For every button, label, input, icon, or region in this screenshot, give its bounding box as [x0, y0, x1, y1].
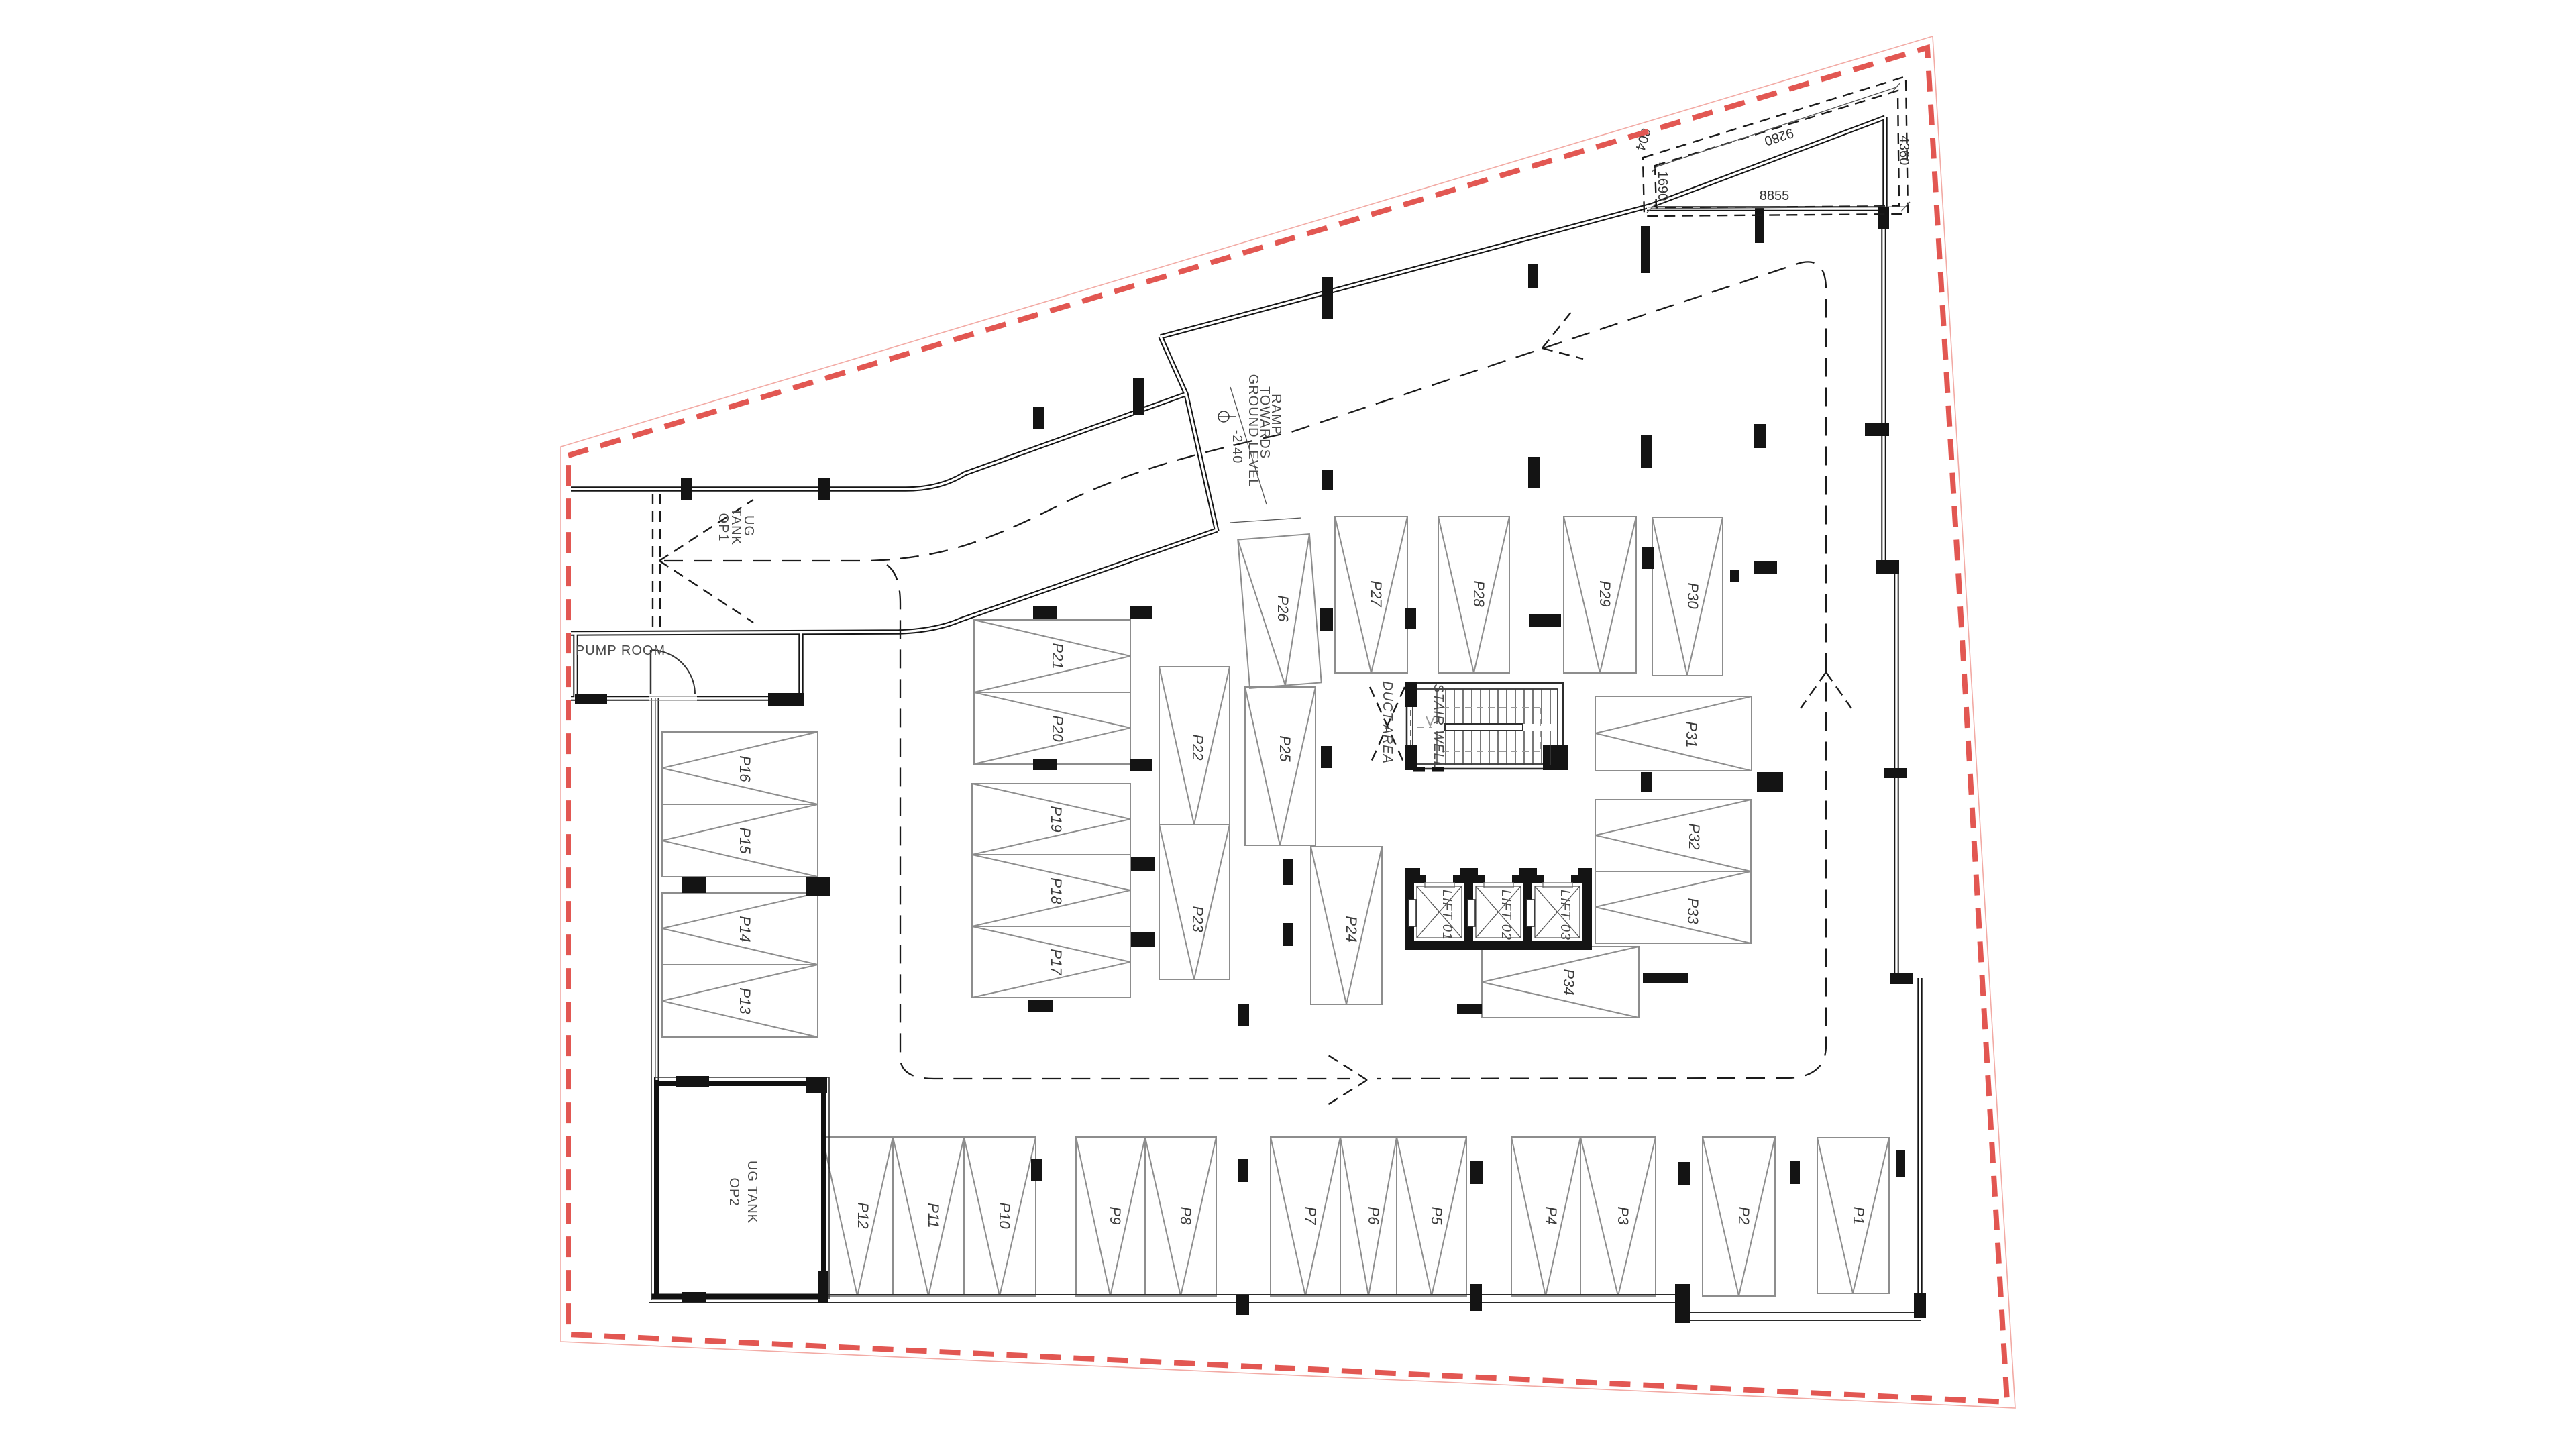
svg-text:P16: P16 [737, 755, 753, 782]
svg-text:P21: P21 [1049, 643, 1066, 669]
svg-text:P2: P2 [1735, 1207, 1752, 1225]
svg-text:P33: P33 [1684, 898, 1701, 924]
svg-text:P4: P4 [1543, 1207, 1560, 1225]
svg-text:LIFT 02: LIFT 02 [1499, 890, 1513, 941]
svg-text:P29: P29 [1597, 580, 1613, 606]
svg-text:OP2: OP2 [727, 1177, 741, 1206]
svg-text:P1: P1 [1850, 1207, 1867, 1225]
svg-text:P34: P34 [1560, 969, 1577, 995]
svg-text:P17: P17 [1048, 949, 1065, 975]
svg-text:8855: 8855 [1760, 189, 1790, 203]
svg-text:P27: P27 [1368, 580, 1385, 607]
svg-text:P31: P31 [1683, 721, 1700, 747]
svg-text:P15: P15 [737, 827, 753, 854]
svg-text:P20: P20 [1049, 715, 1066, 742]
svg-text:P10: P10 [996, 1202, 1013, 1229]
svg-text:P25: P25 [1277, 735, 1293, 762]
svg-text:STAIR WELL: STAIR WELL [1431, 684, 1446, 769]
svg-text:OP1: OP1 [716, 513, 731, 541]
svg-text:P28: P28 [1470, 580, 1487, 607]
svg-text:P24: P24 [1343, 916, 1360, 942]
svg-text:P5: P5 [1428, 1207, 1445, 1226]
svg-text:PUMP ROOM: PUMP ROOM [576, 643, 665, 658]
svg-text:GROUND LEVEL: GROUND LEVEL [1246, 374, 1260, 488]
svg-text:UG TANK: UG TANK [745, 1161, 759, 1224]
svg-text:P32: P32 [1686, 823, 1703, 849]
svg-text:P7: P7 [1302, 1207, 1319, 1226]
svg-text:P8: P8 [1177, 1207, 1194, 1226]
svg-text:P18: P18 [1048, 877, 1065, 904]
svg-text:P13: P13 [737, 987, 753, 1014]
svg-text:P23: P23 [1189, 906, 1206, 932]
svg-text:1690: 1690 [1655, 171, 1670, 201]
svg-text:P30: P30 [1684, 582, 1701, 609]
svg-text:DUCT AREA: DUCT AREA [1380, 681, 1395, 764]
svg-text:LIFT 01: LIFT 01 [1440, 890, 1454, 941]
svg-text:P11: P11 [925, 1203, 942, 1228]
svg-text:P26: P26 [1275, 595, 1291, 622]
svg-text:4360: 4360 [1896, 136, 1911, 166]
svg-text:P22: P22 [1189, 734, 1206, 760]
svg-text:LIFT 03: LIFT 03 [1558, 890, 1572, 941]
svg-text:P12: P12 [855, 1202, 871, 1228]
svg-text:P6: P6 [1365, 1207, 1382, 1226]
svg-text:P3: P3 [1615, 1207, 1631, 1226]
svg-text:P9: P9 [1107, 1207, 1124, 1225]
svg-text:-2.40: -2.40 [1230, 430, 1244, 464]
svg-text:P14: P14 [737, 916, 753, 942]
svg-text:P19: P19 [1048, 806, 1065, 832]
